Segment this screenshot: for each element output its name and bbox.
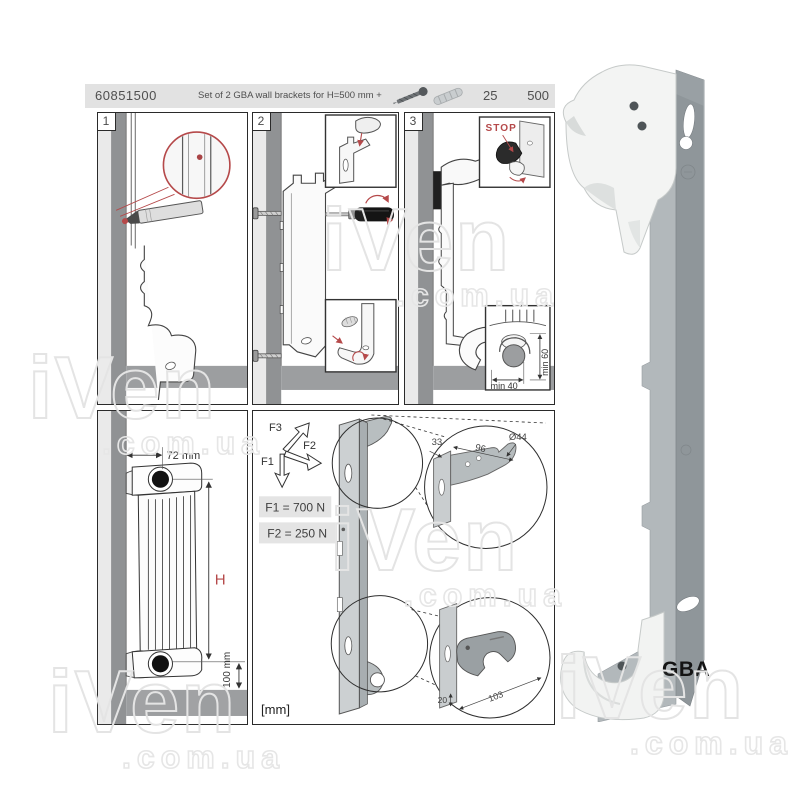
dimensions-panel: 72 mm H 100 mm [97,410,248,725]
depth-label: 72 mm [166,450,200,462]
force-values: F1 = 700 N F2 = 250 N [259,496,335,543]
bottom-detail-circle: 20 103 [430,598,550,718]
top-detail-circle: 33 96 Ø44 [425,426,547,548]
bracket-3d-view [337,417,392,714]
inset-top-hook [326,115,396,187]
min-40-label: min 40 [491,381,518,391]
watermark-domain: .com.ua [630,729,793,758]
dim-96: 96 [474,442,487,455]
height-label: H [215,572,226,589]
f1-value: F1 = 700 N [265,500,325,514]
header-bar: 60851500 Set of 2 GBA wall brackets for … [85,84,555,108]
instruction-sheet: 60851500 Set of 2 GBA wall brackets for … [0,0,800,800]
step2-number: 2 [252,112,271,131]
inset-bottom-hook [326,300,396,372]
dim-33: 33 [432,437,443,448]
units-label: [mm] [261,702,290,717]
product-name-label: GBA [662,658,710,681]
inset-stop-detail: STOP [480,117,550,187]
step3-panel: 3 [404,112,555,405]
dim-diameter: Ø44 [509,432,528,443]
magnifier-detail [116,132,230,216]
step2-panel: 2 [252,112,399,405]
product-description: Set of 2 GBA wall brackets for H=500 mm … [198,84,382,108]
screwdriver [326,207,394,221]
f1-label: F1 [261,456,274,468]
step3-drawing: STOP min 40 min 60 [405,113,554,404]
dimensions-drawing: 72 mm H 100 mm [98,411,247,724]
step1-drawing [98,113,247,404]
watermark-domain: .com.ua [122,743,285,772]
sku: 60851500 [95,84,157,108]
radiator-section [126,463,202,678]
bracket-plate [674,70,704,706]
dim-20: 20 [438,695,448,705]
step2-drawing [253,113,398,404]
clearance-label: 100 mm [222,652,233,688]
clearance-dimension: 100 mm [222,652,239,688]
f2-value: F2 = 250 N [267,526,327,540]
force-arrows: F3 F2 F1 [261,422,321,487]
step1-panel: 1 [97,112,248,405]
f3-label: F3 [269,422,282,434]
stop-label: STOP [486,123,517,134]
forces-drawing: F3 F2 F1 F1 = 700 N F2 = 250 N [253,411,554,724]
marker-pen [121,200,204,226]
inset-min-distances: min 40 min 60 [486,306,550,391]
wall-spacer [433,171,441,209]
screw-icon [393,85,431,107]
product-photo: GBA [558,60,798,722]
min-60-label: min 60 [540,349,550,376]
pack-quantity: 25 [483,84,497,108]
forces-panel: F3 F2 F1 F1 = 700 N F2 = 250 N [252,410,555,725]
step3-number: 3 [404,112,423,131]
wall-plug-icon [429,85,469,107]
step1-number: 1 [97,112,116,131]
height-code: 500 [527,84,549,108]
f2-label: F2 [303,440,316,452]
